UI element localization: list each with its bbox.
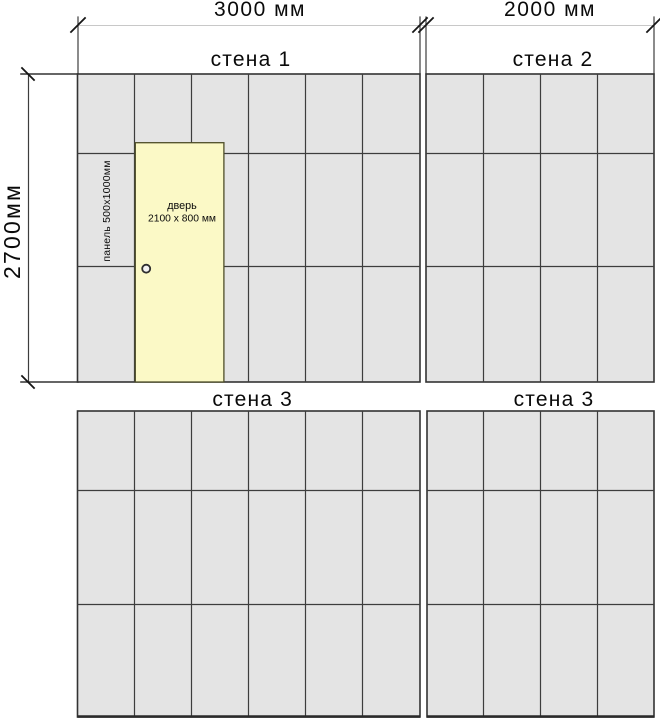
svg-text:2100 х 800 мм: 2100 х 800 мм [148, 214, 216, 225]
svg-text:стена 3: стена 3 [212, 388, 293, 411]
svg-text:стена 1: стена 1 [211, 48, 292, 71]
svg-text:стена 3: стена 3 [514, 388, 595, 411]
svg-text:2700мм: 2700мм [0, 183, 25, 279]
svg-text:дверь: дверь [167, 200, 197, 212]
svg-text:стена 2: стена 2 [513, 48, 594, 71]
svg-text:3000 мм: 3000 мм [214, 0, 306, 21]
svg-text:2000 мм: 2000 мм [504, 0, 596, 21]
svg-text:панель 500х1000мм: панель 500х1000мм [101, 160, 113, 261]
